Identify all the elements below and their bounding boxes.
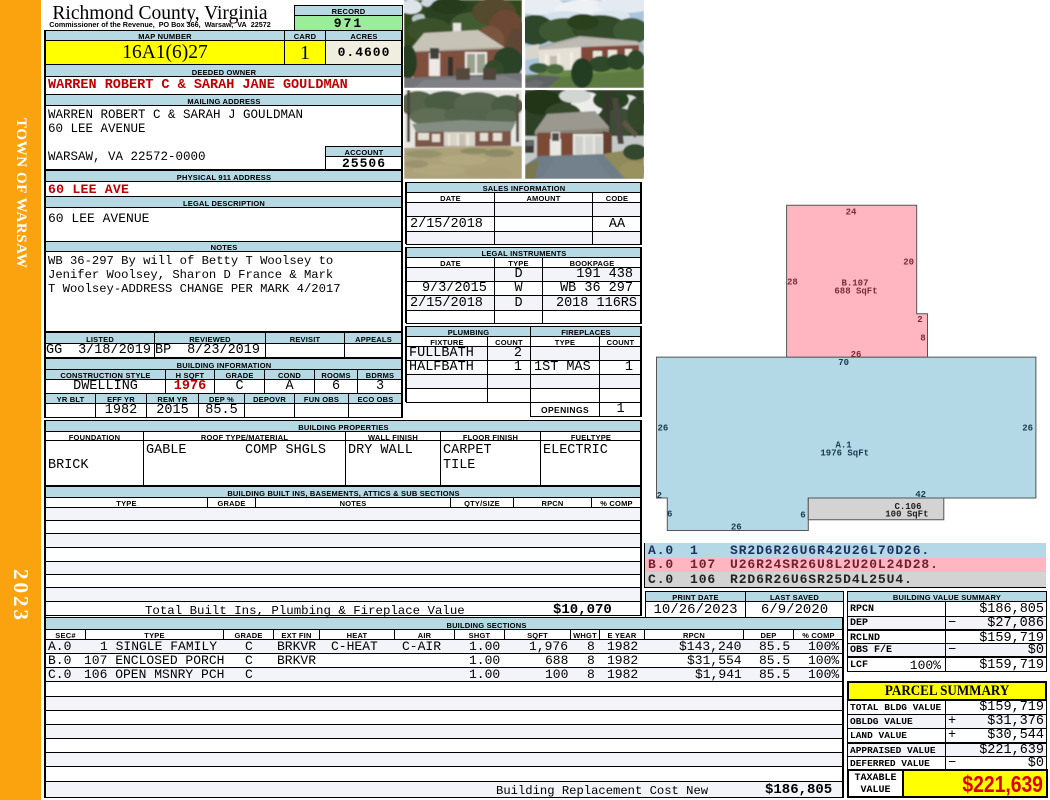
svg-text:26: 26 [658, 424, 669, 434]
svg-text:2: 2 [917, 315, 922, 325]
svg-text:6: 6 [667, 510, 672, 520]
svg-text:100 SqFt: 100 SqFt [885, 510, 928, 520]
svg-text:688 SqFt: 688 SqFt [834, 287, 877, 297]
svg-text:2: 2 [657, 491, 662, 501]
svg-text:28: 28 [787, 278, 798, 288]
svg-text:1976 SqFt: 1976 SqFt [820, 448, 869, 458]
svg-text:8: 8 [920, 333, 925, 343]
svg-text:26: 26 [851, 350, 862, 360]
svg-text:26: 26 [1022, 424, 1033, 434]
svg-text:42: 42 [915, 490, 926, 500]
svg-text:24: 24 [846, 208, 857, 218]
svg-text:70: 70 [838, 358, 849, 368]
svg-text:26: 26 [731, 522, 742, 532]
svg-text:20: 20 [903, 258, 914, 268]
svg-text:6: 6 [800, 511, 805, 521]
